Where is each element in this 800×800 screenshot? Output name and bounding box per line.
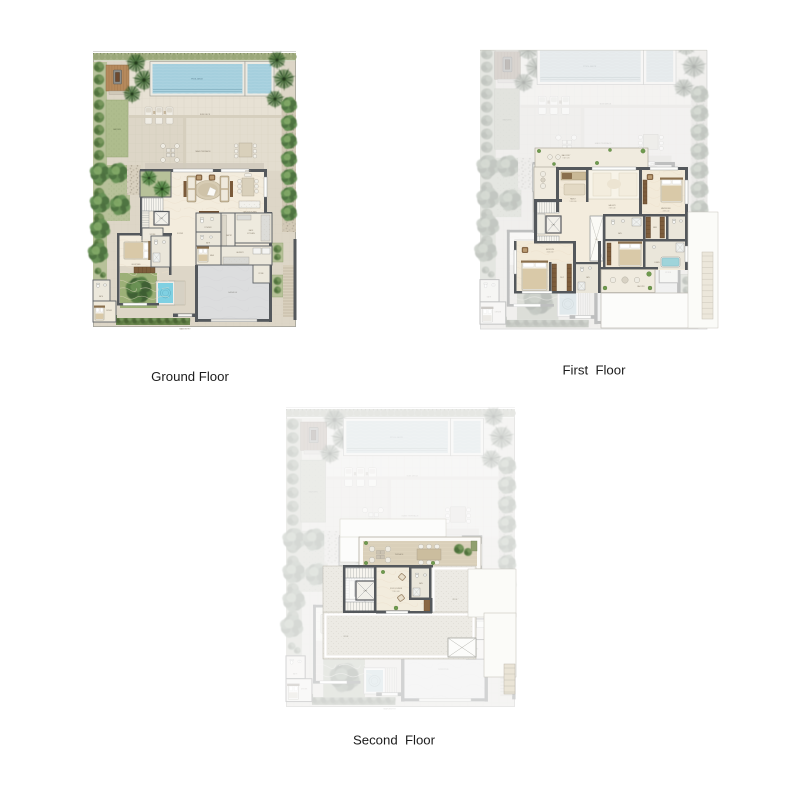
svg-text:GARAGE: GARAGE [228,291,238,294]
svg-text:GARAGE: GARAGE [438,668,449,671]
svg-text:BEDROOM: BEDROOM [546,249,555,251]
svg-text:POOL DECK: POOL DECK [583,66,597,68]
svg-text:5.10 X 4.00: 5.10 X 4.00 [570,201,577,203]
svg-text:TERRACE: TERRACE [395,553,404,556]
svg-text:MAIN ENTRY: MAIN ENTRY [384,708,397,711]
svg-text:5.10 X 4.50: 5.10 X 4.50 [392,591,399,593]
svg-text:GUEST BED: GUEST BED [131,264,141,266]
svg-text:POOL DECK: POOL DECK [191,79,203,81]
svg-text:STORE: STORE [258,273,263,275]
svg-text:POWDER: POWDER [204,227,212,229]
svg-text:4.80 X 4.20: 4.80 X 4.20 [663,210,670,212]
svg-text:7.30 X 1.70: 7.30 X 1.70 [562,158,569,160]
svg-text:ROOF: ROOF [344,636,349,638]
svg-text:MAIN TERRACE: MAIN TERRACE [402,515,419,518]
svg-text:Ground Floor: Ground Floor [151,369,229,384]
svg-text:GARDEN: GARDEN [309,491,319,494]
svg-text:VOID: VOID [595,239,598,241]
svg-text:DRIVER: DRIVER [106,310,113,312]
svg-text:BALCONY: BALCONY [562,154,571,157]
svg-text:7.40 X 1.40: 7.40 X 1.40 [609,207,616,209]
svg-text:DRIVER: DRIVER [495,312,502,314]
svg-text:MAIN TERRACE: MAIN TERRACE [195,150,211,153]
svg-text:FOYER: FOYER [177,233,184,235]
svg-text:4.50 X 4.00: 4.50 X 4.00 [547,251,554,253]
svg-text:MAIN TERRACE: MAIN TERRACE [595,142,612,145]
svg-text:GARDEN: GARDEN [113,128,122,131]
svg-text:KITCHEN: KITCHEN [247,233,255,235]
svg-text:DRIVER: DRIVER [301,689,308,691]
svg-text:ROOF: ROOF [453,599,458,601]
svg-text:DINING: DINING [245,171,252,173]
svg-text:DINING: DINING [650,164,657,166]
svg-text:First Floor: First Floor [562,363,626,378]
svg-text:STORE: STORE [665,272,672,274]
svg-text:MAIN ENTRY: MAIN ENTRY [179,328,191,331]
svg-text:Second Floor: Second Floor [353,733,436,748]
svg-text:POOL DECK: POOL DECK [390,437,404,439]
svg-text:GARDEN: GARDEN [502,119,512,122]
svg-text:ROOF LOUNGE: ROOF LOUNGE [390,588,402,590]
